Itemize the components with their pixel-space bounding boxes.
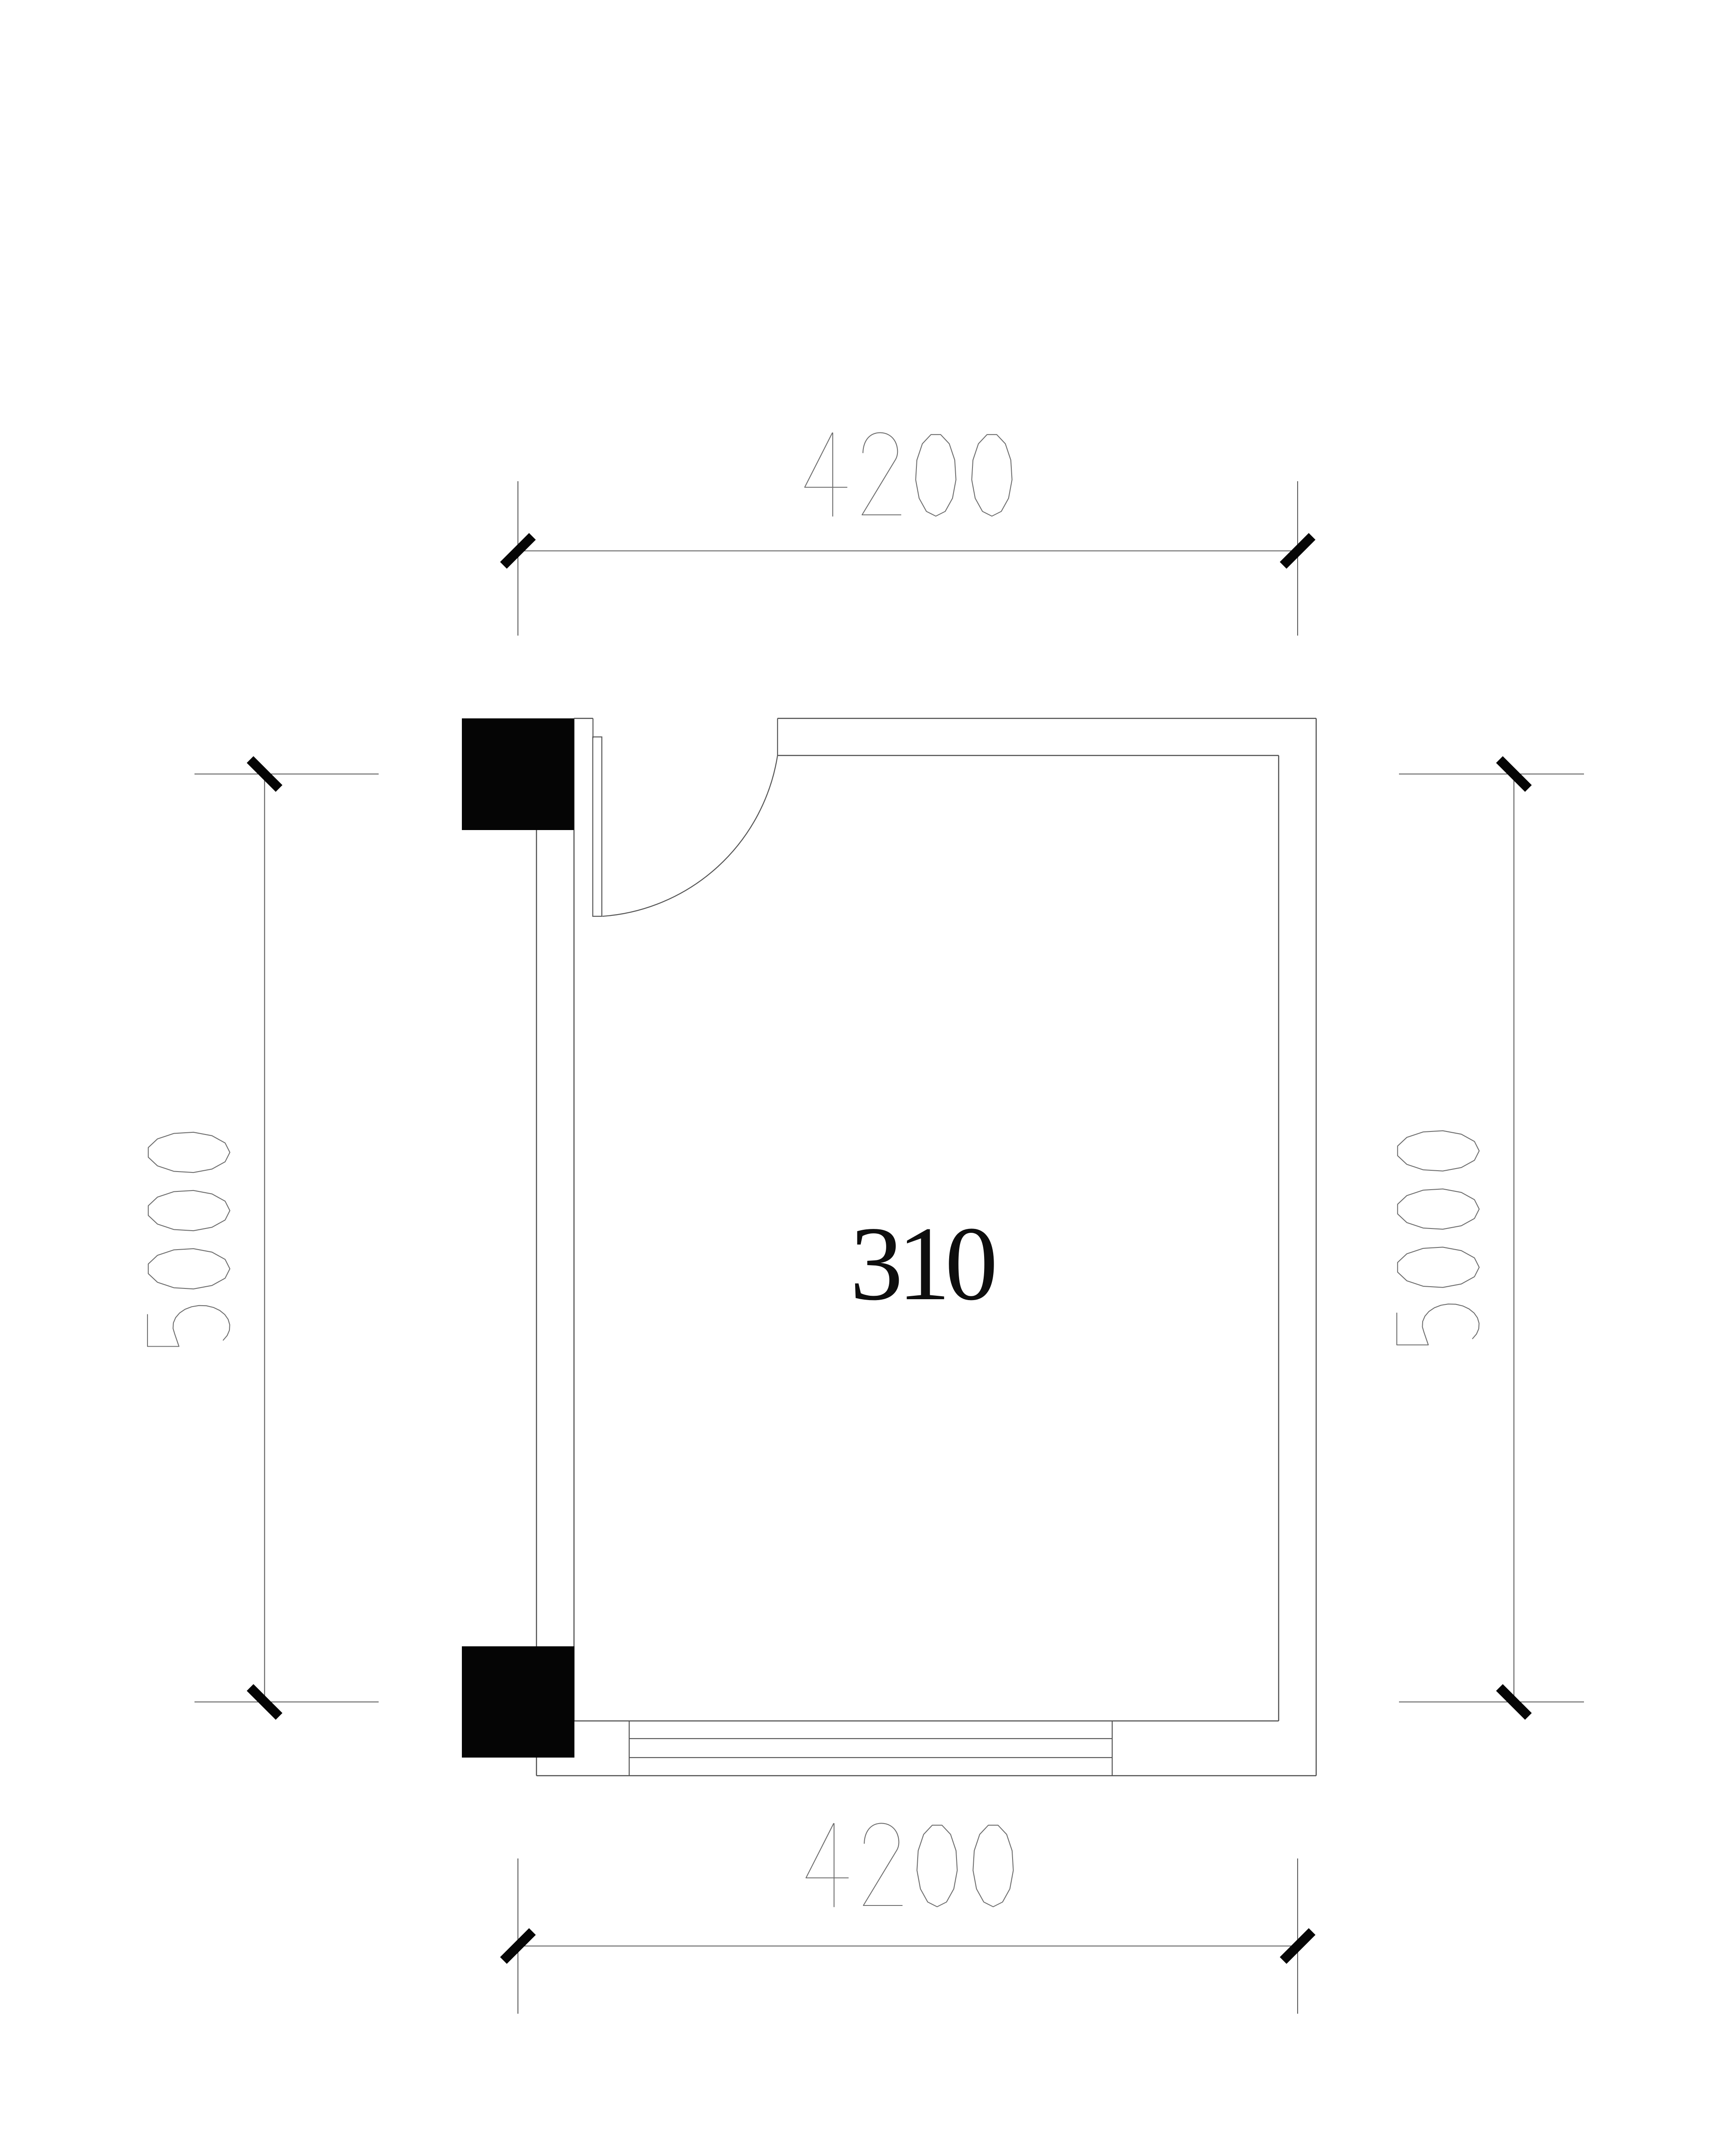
svg-text:310: 310 <box>850 1205 998 1322</box>
